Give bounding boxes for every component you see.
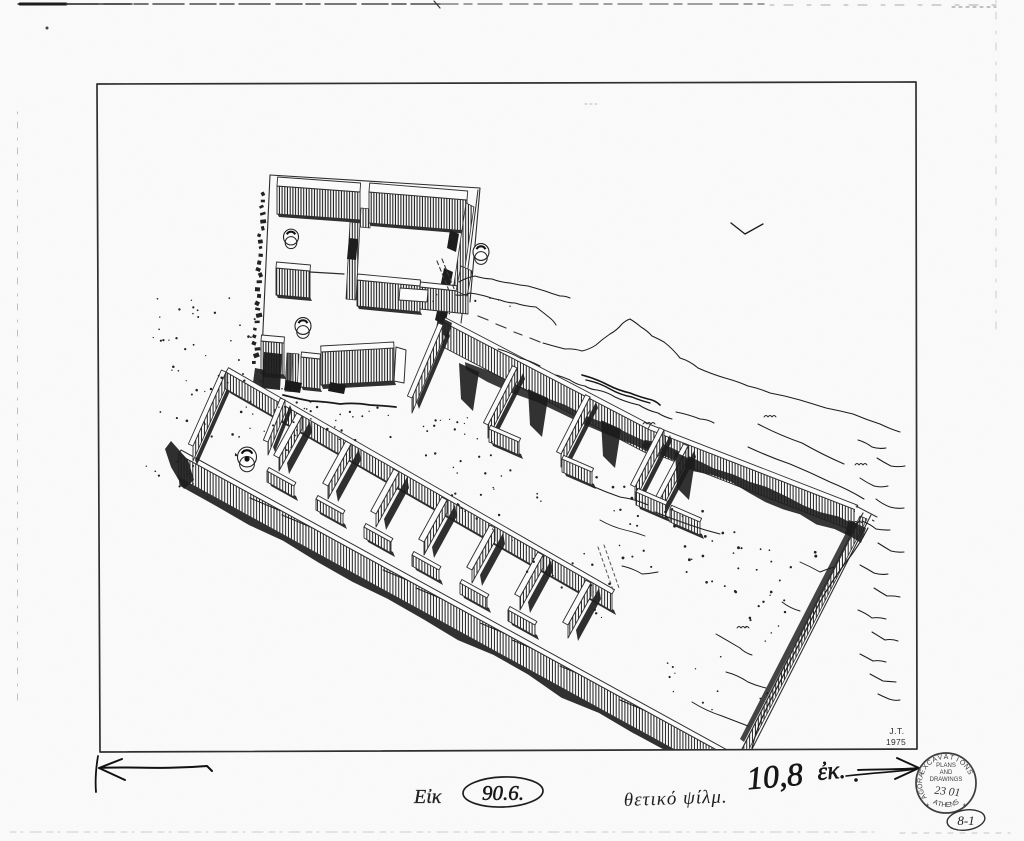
- svg-text:DRAWINGS: DRAWINGS: [930, 777, 963, 783]
- svg-text:A: A: [944, 754, 949, 761]
- svg-text:J.T.: J.T.: [889, 726, 904, 736]
- svg-text:PLANS: PLANS: [936, 763, 956, 769]
- svg-text:1975: 1975: [886, 737, 906, 747]
- svg-text:AND: AND: [940, 770, 953, 776]
- svg-text:90.6.: 90.6.: [482, 781, 524, 805]
- svg-text:θετικό ψίλμ.: θετικό ψίλμ.: [623, 786, 728, 811]
- svg-text:10,8: 10,8: [745, 756, 804, 797]
- svg-text:Εἰκ: Εἰκ: [413, 786, 442, 808]
- svg-text:8-1: 8-1: [957, 813, 974, 828]
- svg-text:ἐκ.: ἐκ.: [816, 757, 846, 786]
